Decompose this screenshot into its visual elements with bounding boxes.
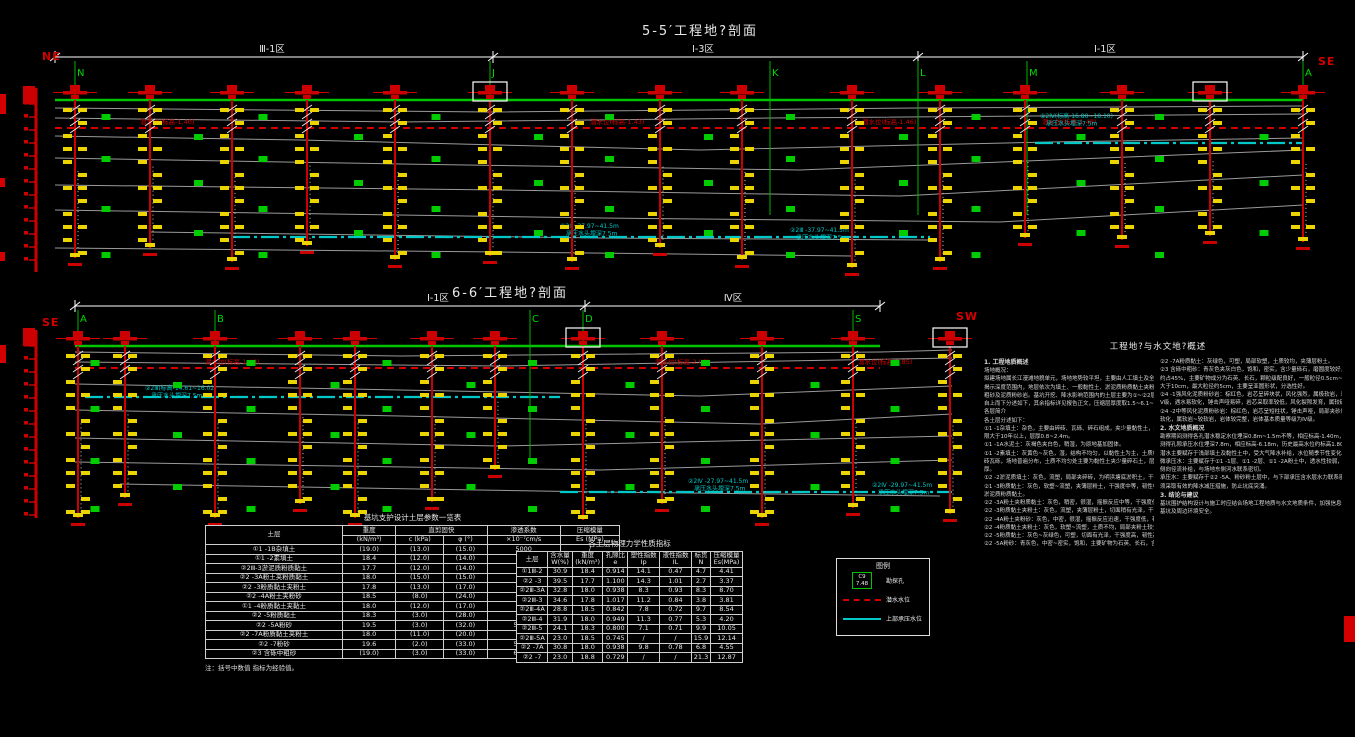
layer-code-mark	[534, 230, 543, 236]
table-cell: 7.1	[628, 624, 660, 634]
layer-code-mark	[102, 114, 111, 120]
table-cell: (3.0)	[396, 621, 444, 631]
sample-tick	[575, 251, 584, 255]
sample-tick	[1013, 147, 1022, 151]
borehole-bottom-label	[388, 265, 402, 268]
table-cell: /	[628, 653, 660, 663]
sample-tick	[1291, 212, 1300, 216]
table-cell: (19.0)	[342, 545, 395, 555]
sample-tick	[498, 432, 507, 436]
layer-code-mark	[701, 506, 710, 512]
borehole-top-foot	[491, 341, 499, 345]
borehole-bottom-tick	[737, 255, 747, 259]
sample-tick	[1291, 225, 1300, 229]
sample-tick	[113, 406, 122, 410]
sample-tick	[128, 432, 137, 436]
sample-tick	[648, 134, 657, 138]
sample-tick	[953, 354, 962, 358]
layer-code-mark	[432, 206, 441, 212]
scale-number-mark	[24, 382, 28, 386]
sample-tick	[586, 497, 595, 501]
note-line: 大于10cm，最大粒径约5cm，主要呈亚圆形状，分选性好。	[1160, 383, 1342, 391]
borehole-bottom-label	[1203, 241, 1217, 244]
scale-number-mark	[24, 343, 28, 347]
sample-tick	[750, 380, 759, 384]
confined-line-sample	[843, 618, 881, 620]
layer-code-mark	[259, 156, 268, 162]
sample-tick	[383, 134, 392, 138]
note-line: ①1 -2素填土：灰黄色~灰色，湿，结构不均匀，以黏性土为主，土质松软且欠固结，…	[984, 450, 1154, 458]
sample-tick	[81, 367, 90, 371]
scale-number-mark	[24, 244, 28, 248]
sample-tick	[1125, 147, 1134, 151]
layer-code-mark	[605, 114, 614, 120]
sample-tick	[841, 380, 850, 384]
sample-tick	[81, 497, 90, 501]
sample-tick	[745, 225, 754, 229]
table-cell: ②2Ⅲ-5A	[517, 634, 548, 644]
table-cell: 0.47	[660, 567, 692, 577]
sample-tick	[765, 367, 774, 371]
layer-code-mark	[534, 134, 543, 140]
table-cell: 3.81	[711, 596, 743, 606]
sample-tick	[765, 445, 774, 449]
sample-tick	[841, 354, 850, 358]
sample-tick	[560, 225, 569, 229]
phreatic-water-label: 潜水位(标高-1.43)	[590, 117, 644, 126]
sample-tick	[138, 134, 147, 138]
borehole	[53, 85, 97, 266]
borehole-top-foot	[1299, 95, 1307, 99]
table-cell: 1.017	[603, 596, 628, 606]
sample-tick	[113, 380, 122, 384]
section-5-5-title: 5-5′工程地?剖面	[642, 20, 758, 39]
sample-tick	[295, 108, 304, 112]
note-line: 基坑围护结构设计与施工时应结合场地工程地质与水文地质条件，加强信息化施工监测，确…	[1160, 500, 1342, 508]
phreatic-water-label: 潜水位(标高-1.40)	[140, 117, 194, 126]
sample-tick	[1125, 186, 1134, 190]
sample-tick	[953, 432, 962, 436]
table-cell: (15.0)	[396, 573, 444, 583]
sample-tick	[63, 147, 72, 151]
sample-tick	[1213, 121, 1222, 125]
sample-tick	[665, 432, 674, 436]
borehole-top-foot	[486, 95, 494, 99]
scale-number-mark	[24, 127, 28, 131]
section-marker-letter: S	[855, 314, 861, 325]
layer-code-mark	[91, 506, 100, 512]
table-cell: 8.70	[711, 586, 743, 596]
table-cell: 14.1	[628, 567, 660, 577]
sample-tick	[81, 471, 90, 475]
table-row: ②2Ⅲ-431.918.00.94911.30.775.34.20	[517, 615, 743, 625]
section-marker-letter: B	[217, 314, 224, 325]
note-line: 各土层分述如下：	[984, 417, 1154, 425]
sample-tick	[288, 406, 297, 410]
layer-code-mark	[1077, 180, 1086, 186]
borehole-top-cap	[390, 85, 400, 91]
sample-tick	[383, 160, 392, 164]
borehole-top-foot	[758, 341, 766, 345]
sample-tick	[310, 173, 319, 177]
sample-tick	[153, 121, 162, 125]
sample-tick	[571, 380, 580, 384]
layer-code-mark	[194, 134, 203, 140]
sample-tick	[856, 419, 865, 423]
note-line: 基坑及周边环境安全。	[1160, 508, 1342, 516]
sample-tick	[856, 393, 865, 397]
sample-tick	[750, 458, 759, 462]
sample-tick	[138, 212, 147, 216]
sample-tick	[1291, 108, 1300, 112]
sample-tick	[663, 186, 672, 190]
sample-tick	[730, 212, 739, 216]
borehole-bottom-tick	[1020, 233, 1030, 237]
scale-number-mark	[24, 486, 28, 490]
sample-tick	[295, 186, 304, 190]
layer-code-mark	[811, 484, 820, 490]
table-cell: ②2 -5粉质黏土	[206, 611, 343, 621]
scale-number-mark	[24, 257, 28, 261]
table-row: ②2Ⅲ-4A28.818.50.8427.80.729.78.54	[517, 605, 743, 615]
sample-tick	[745, 147, 754, 151]
sample-tick	[218, 471, 227, 475]
sample-tick	[650, 484, 659, 488]
layer-code-mark	[102, 252, 111, 258]
zone-label: Ⅰ-1区	[1094, 44, 1116, 55]
sample-tick	[220, 134, 229, 138]
sample-tick	[498, 367, 507, 371]
borehole-symbol: C9 7.48	[852, 572, 872, 588]
borehole-bottom-label	[735, 265, 749, 268]
sample-tick	[483, 393, 492, 397]
sample-tick	[310, 225, 319, 229]
sample-tick	[153, 199, 162, 203]
sample-tick	[648, 238, 657, 242]
sample-tick	[81, 419, 90, 423]
sample-tick	[66, 393, 75, 397]
sample-tick	[383, 238, 392, 242]
layer-code-mark	[701, 458, 710, 464]
table-cell: 14.3	[628, 577, 660, 587]
table-cell: 10.05	[711, 624, 743, 634]
table-cell: (33.0)	[444, 649, 487, 659]
sample-tick	[650, 354, 659, 358]
borehole-bottom-label	[1296, 247, 1310, 250]
table-cell: 17.7	[572, 577, 603, 587]
sample-tick	[358, 432, 367, 436]
sample-tick	[1125, 173, 1134, 177]
borehole	[918, 85, 962, 270]
section-marker-letter: C	[532, 314, 539, 325]
borehole-top-cap	[657, 331, 667, 337]
sample-tick	[128, 393, 137, 397]
sample-tick	[745, 121, 754, 125]
borehole-bottom-label	[300, 251, 314, 254]
sample-tick	[420, 484, 429, 488]
table-header-cell: 重度 (kN/m³)	[572, 552, 603, 568]
sample-tick	[855, 121, 864, 125]
sample-tick	[1125, 199, 1134, 203]
table-row: ②2Ⅲ-524.118.30.8007.10.719.910.05	[517, 624, 743, 634]
sample-tick	[138, 160, 147, 164]
borehole-top-cap	[490, 331, 500, 337]
layer-boundary-line	[55, 175, 1303, 196]
sample-tick	[81, 445, 90, 449]
layer-code-mark	[247, 406, 256, 412]
borehole-top-foot	[936, 95, 944, 99]
borehole-top-cap	[847, 85, 857, 91]
scale-number-mark	[24, 499, 28, 503]
sample-tick	[1213, 186, 1222, 190]
table-cell: ②2 -7	[517, 653, 548, 663]
sample-tick	[750, 354, 759, 358]
sample-tick	[493, 199, 502, 203]
sample-tick	[745, 173, 754, 177]
confined-water-label: 承压水头埋深7.5m	[1046, 120, 1098, 128]
table-cell: 9.7	[691, 605, 710, 615]
sample-tick	[1291, 186, 1300, 190]
sample-tick	[343, 354, 352, 358]
layer-code-mark	[354, 180, 363, 186]
edge-mark	[1344, 616, 1355, 642]
legend-item-confined: 上部承压水位	[837, 609, 929, 628]
table-cell: 18.0	[572, 586, 603, 596]
sample-tick	[1291, 147, 1300, 151]
sample-tick	[138, 108, 147, 112]
sample-tick	[498, 445, 507, 449]
section-marker-letter: L	[920, 68, 926, 79]
borehole-bottom-label	[653, 253, 667, 256]
borehole-top-foot	[1206, 95, 1214, 99]
sample-tick	[953, 367, 962, 371]
sample-tick	[1198, 134, 1207, 138]
sample-tick	[218, 354, 227, 358]
borehole-bottom-tick	[655, 243, 665, 247]
sample-tick	[420, 471, 429, 475]
sample-tick	[665, 471, 674, 475]
sample-tick	[78, 173, 87, 177]
sample-tick	[358, 419, 367, 423]
confined-water-label: 承压水头埋深7.5m	[694, 485, 746, 493]
sample-tick	[343, 471, 352, 475]
sample-tick	[586, 393, 595, 397]
layer-code-mark	[194, 230, 203, 236]
sample-tick	[730, 160, 739, 164]
sample-tick	[235, 186, 244, 190]
layer-code-mark	[626, 484, 635, 490]
cad-canvas: Ⅲ-1区Ⅰ-3区Ⅰ-1区潜水位(标高-1.40)潜水位(标高-1.43)潜水位(…	[0, 0, 1355, 737]
layer-code-mark	[605, 252, 614, 258]
table-cell: /	[660, 634, 692, 644]
sample-tick	[498, 419, 507, 423]
borehole-bottom-tick	[427, 497, 437, 501]
borehole	[550, 85, 594, 270]
sample-tick	[288, 354, 297, 358]
table-cell: ②2Ⅲ-3	[517, 596, 548, 606]
note-line: ①2 -2淤泥质填土：灰色，流塑，局部夹碎砖，为明浜塘底淤积土，干强度中等韧性中…	[984, 474, 1154, 482]
borehole-top-foot	[1118, 95, 1126, 99]
layer-code-mark	[331, 382, 340, 388]
sample-tick	[1110, 134, 1119, 138]
sample-tick	[856, 445, 865, 449]
table-header-cell: 压缩模量	[560, 526, 619, 536]
note-line: 勘察期间测得各孔潜水稳定水位埋深0.8m~1.5m不等，相应标高-1.40m，2…	[1160, 433, 1342, 441]
table-cell: (19.0)	[342, 649, 395, 659]
sample-tick	[665, 367, 674, 371]
sample-tick	[560, 238, 569, 242]
layer-code-mark	[467, 432, 476, 438]
note-line: ②3 含砾中粗砂：青灰色夹灰白色，饱和，密实，含少量砾石，磨圆度较好，不均匀系数…	[1160, 366, 1342, 374]
table-header-cell: φ (°)	[444, 535, 487, 545]
scale-number-mark	[24, 447, 28, 451]
sample-tick	[1028, 121, 1037, 125]
table-cell: 18.5	[572, 634, 603, 644]
note-line: ②2 -4A粉土夹粉砂：灰色，中密，很湿，摇振反应迅速，干强度低，韧性低，夹粉质…	[984, 516, 1154, 524]
sample-tick	[571, 393, 580, 397]
layer-code-mark	[1155, 252, 1164, 258]
sample-tick	[855, 147, 864, 151]
sample-tick	[435, 393, 444, 397]
sample-tick	[575, 108, 584, 112]
sample-tick	[295, 225, 304, 229]
sample-tick	[478, 212, 487, 216]
edge-mark	[0, 252, 5, 261]
table-cell: 4.7	[691, 567, 710, 577]
layer-code-mark	[786, 252, 795, 258]
layer-code-mark	[247, 458, 256, 464]
note-line: 自上而下分述如下，其余指标详见报告正文，压缩层厚度取1.5~6.1~2.0m。	[984, 400, 1154, 408]
sample-tick	[586, 419, 595, 423]
layer-code-mark	[701, 360, 710, 366]
sample-tick	[928, 186, 937, 190]
note-line: 2. 水文地质概况	[1160, 424, 1342, 433]
sample-tick	[398, 199, 407, 203]
layer-boundary-line	[55, 114, 1303, 122]
table-cell: 6.8	[691, 643, 710, 653]
sample-tick	[288, 432, 297, 436]
sample-tick	[841, 406, 850, 410]
borehole-top-foot	[351, 341, 359, 345]
sample-tick	[128, 419, 137, 423]
sample-tick	[730, 238, 739, 242]
sample-tick	[383, 212, 392, 216]
sample-tick	[435, 419, 444, 423]
table-cell: (3.0)	[396, 649, 444, 659]
sample-tick	[113, 458, 122, 462]
table-cell: 23.0	[548, 653, 573, 663]
sample-tick	[203, 432, 212, 436]
note-line: 微承压水：主要赋存于①1 -1层、①1 -2层、①1 -2A粉土中，透水性较弱，…	[1160, 458, 1342, 466]
table1-note: 注：括号中数值 指标为经验值。	[205, 662, 620, 672]
sample-tick	[648, 108, 657, 112]
scale-number-mark	[24, 218, 28, 222]
scale-number-mark	[24, 140, 28, 144]
layer-code-mark	[528, 360, 537, 366]
table-header-cell: 孔隙比 e	[603, 552, 628, 568]
sample-tick	[295, 212, 304, 216]
borehole-top-foot	[946, 341, 954, 345]
borehole-top-foot	[658, 341, 666, 345]
sample-tick	[81, 354, 90, 358]
borehole-bottom-tick	[1117, 235, 1127, 239]
table-cell: 17.8	[342, 583, 395, 593]
sample-tick	[310, 199, 319, 203]
borehole-bottom-tick	[227, 257, 237, 261]
table-header-cell: 含水量 W(%)	[548, 552, 573, 568]
sample-tick	[220, 108, 229, 112]
sample-tick	[295, 134, 304, 138]
layer-code-mark	[91, 360, 100, 366]
sample-tick	[498, 354, 507, 358]
sample-tick	[78, 108, 87, 112]
sample-tick	[840, 160, 849, 164]
section-6-6-title: 6-6′工程地?剖面	[452, 282, 568, 301]
sample-tick	[303, 471, 312, 475]
scale-number-mark	[24, 512, 28, 516]
sample-tick	[358, 367, 367, 371]
layer-code-mark	[102, 156, 111, 162]
sample-tick	[493, 225, 502, 229]
table-cell: 1.100	[603, 577, 628, 587]
sample-tick	[343, 393, 352, 397]
table-cell: 12.87	[711, 653, 743, 663]
layer-code-mark	[891, 406, 900, 412]
sample-tick	[1125, 225, 1134, 229]
sample-tick	[493, 121, 502, 125]
scale-number-mark	[24, 395, 28, 399]
table-cell: ①1 -4粉质黏土夹黏土	[206, 602, 343, 612]
sample-tick	[1028, 186, 1037, 190]
table-cell: ②2 -3粉质黏土夹粉土	[206, 583, 343, 593]
sample-tick	[1125, 108, 1134, 112]
layer-code-mark	[247, 360, 256, 366]
sample-tick	[841, 471, 850, 475]
sample-tick	[113, 471, 122, 475]
sample-tick	[663, 108, 672, 112]
sample-tick	[1198, 225, 1207, 229]
sample-tick	[218, 393, 227, 397]
sample-tick	[153, 173, 162, 177]
layer-code-mark	[432, 114, 441, 120]
sample-tick	[943, 147, 952, 151]
sample-tick	[840, 108, 849, 112]
borehole-top-cap	[485, 85, 495, 91]
sample-tick	[343, 484, 352, 488]
borehole-top-foot	[579, 341, 587, 345]
scale-number-mark	[24, 192, 28, 196]
layer-code-mark	[1260, 134, 1269, 140]
soil-physical-props-table: 各土层物理力学性质指标 土层含水量 W(%)重度 (kN/m³)孔隙比 e塑性指…	[516, 538, 743, 663]
scale-number-mark	[24, 408, 28, 412]
table-cell: ②2 -7粉砂	[206, 640, 343, 650]
layer-code-mark	[891, 360, 900, 366]
sample-tick	[928, 160, 937, 164]
scale-number-mark	[24, 114, 28, 118]
table-cell: 28.8	[548, 605, 573, 615]
sample-tick	[138, 186, 147, 190]
borehole-bottom-tick	[120, 493, 130, 497]
sample-tick	[1198, 186, 1207, 190]
table-cell: (8.0)	[396, 592, 444, 602]
sample-tick	[745, 199, 754, 203]
note-line: ②2 -7A粉质黏土：灰绿色，可塑，局部软塑，土质较均，夹薄层粉土。	[1160, 358, 1342, 366]
layer-code-mark	[972, 156, 981, 162]
section-marker-letter: N	[77, 68, 84, 79]
sample-tick	[138, 147, 147, 151]
sample-tick	[1013, 134, 1022, 138]
table-cell: ②2Ⅲ-3A	[517, 586, 548, 596]
